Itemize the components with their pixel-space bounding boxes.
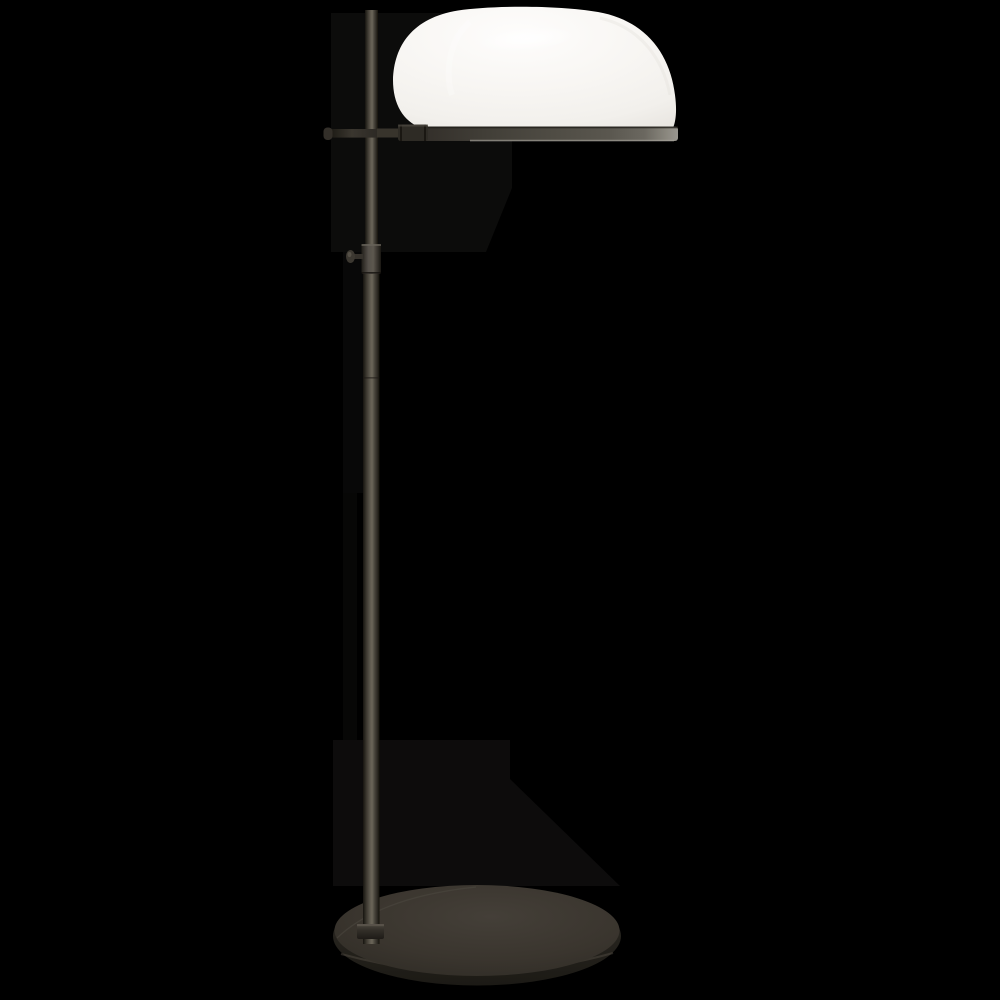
lamp-pole-lower	[363, 272, 380, 944]
sleeve-top-edge	[362, 244, 382, 246]
shadow-pole-band-narrow	[343, 493, 357, 740]
sleeve-body	[362, 244, 382, 274]
floor-lamp-illustration	[0, 0, 1000, 1000]
arm-connector-sleeve	[398, 125, 428, 142]
rim-band	[401, 127, 678, 142]
product-image-canvas	[0, 0, 1000, 1000]
crossbar-stub	[326, 129, 378, 138]
rim-top-edge	[401, 127, 678, 129]
base-collar-body	[357, 924, 384, 939]
knob-head-highlight	[348, 252, 352, 257]
base-collar-top-edge	[357, 924, 384, 926]
base-collar	[357, 924, 384, 939]
crossbar-end-cap	[324, 128, 333, 141]
connector-ridge-right	[424, 125, 426, 142]
shade-rim	[401, 127, 678, 142]
lamp-pole-upper	[365, 10, 378, 246]
pole-seam	[363, 377, 380, 379]
connector-ridge-left	[400, 125, 402, 142]
connector-top-edge	[398, 125, 428, 127]
sleeve-bottom-edge	[362, 272, 382, 274]
telescoping-sleeve	[362, 244, 382, 274]
